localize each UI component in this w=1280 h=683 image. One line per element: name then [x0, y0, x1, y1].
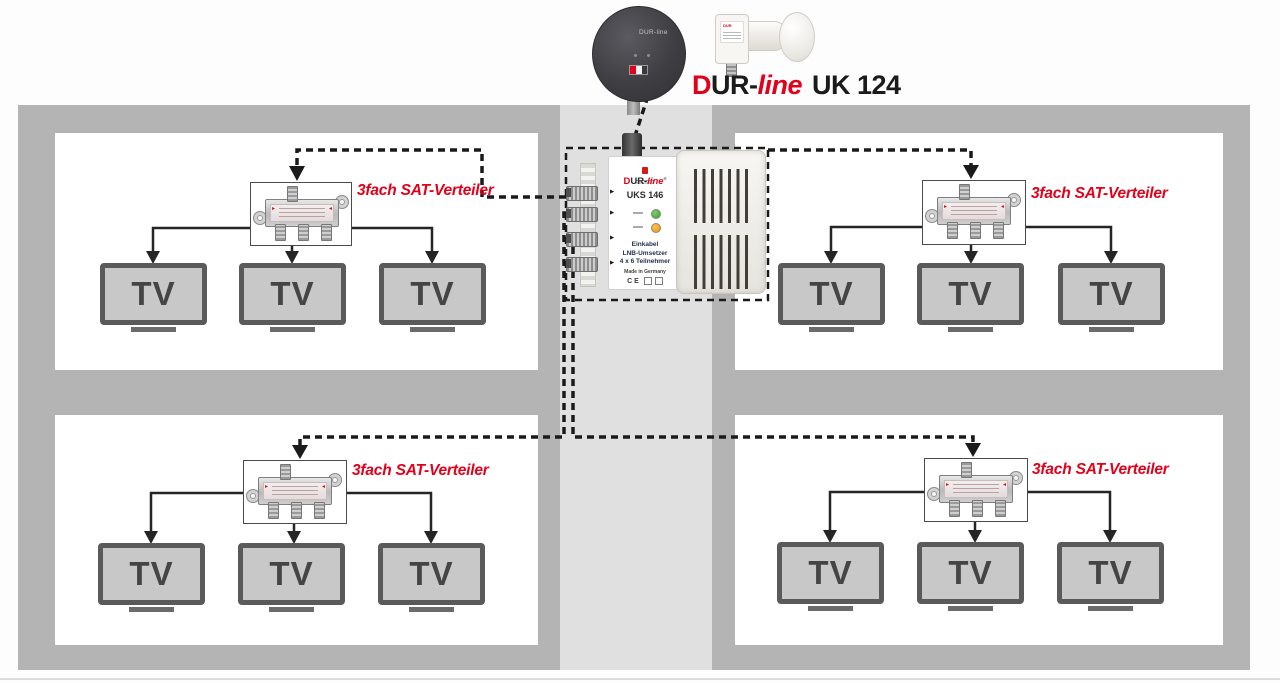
- unit-output-connector-1: [566, 186, 598, 201]
- connector-arrow-icon: ▶: [610, 261, 614, 267]
- connector-arrow-icon: ▶: [610, 236, 614, 242]
- splitter-output: [970, 222, 981, 239]
- unit-output-connector-2: [566, 207, 598, 222]
- distribution-unit-faceplate: DUR-line® UKS 146 Einkabel LNB-Umsetzer …: [608, 156, 682, 290]
- tv-label: TV: [948, 554, 992, 592]
- splitter-box-top-left: ▸◂: [250, 182, 352, 246]
- tv-label: TV: [409, 555, 453, 593]
- tv-label: TV: [131, 275, 175, 313]
- splitter-label: 3fach SAT-Verteiler: [352, 462, 489, 480]
- tv-label: TV: [808, 554, 852, 592]
- tv-label: TV: [269, 555, 313, 593]
- tv-label: TV: [1088, 554, 1132, 592]
- splitter-box-top-right: ▸◂: [922, 180, 1026, 245]
- tv-label: TV: [809, 275, 853, 313]
- splitter-label: 3fach SAT-Verteiler: [1032, 461, 1169, 479]
- dish-rivet: [647, 54, 650, 57]
- tv-stand: [409, 607, 454, 612]
- splitter-body: ▸◂: [937, 197, 1011, 225]
- splitter-output: [275, 224, 286, 241]
- tv-label: TV: [410, 275, 454, 313]
- tv: TV: [917, 263, 1024, 335]
- title-model: UK 124: [812, 70, 901, 100]
- tv-label: TV: [1089, 275, 1133, 313]
- vent-slots-lower: [694, 235, 750, 289]
- title-letter-d: D: [692, 70, 711, 100]
- tv-label: TV: [948, 275, 992, 313]
- tv: TV: [778, 263, 885, 335]
- dish-logo-sticker: [629, 65, 648, 75]
- splitter-input: [280, 464, 291, 480]
- splitter-output: [972, 500, 983, 517]
- tv: TV: [239, 263, 346, 335]
- unit-output-connector-3: [566, 232, 598, 247]
- unit-brand: DUR-line®: [609, 176, 681, 187]
- unit-vented-cover: [676, 150, 766, 294]
- dish-rivet: [634, 54, 637, 57]
- diagram-canvas: DUR-line DUR DUR-lineUK 124 DUR-line® UK…: [0, 0, 1280, 683]
- page-bottom-edge: [0, 678, 1280, 680]
- title-line: line: [758, 70, 803, 100]
- splitter-label: 3fach SAT-Verteiler: [1031, 185, 1168, 203]
- splitter-input: [961, 462, 972, 478]
- unit-description: Einkabel LNB-Umsetzer 4 x 6 Teilnehmer: [609, 241, 681, 267]
- unit-output-connector-4: [566, 257, 598, 272]
- unit-warning-mark: [609, 161, 681, 173]
- splitter-body: ▸◂: [939, 475, 1013, 503]
- splitter-box-bottom-left: ▸◂: [243, 460, 347, 524]
- tv-label: TV: [129, 555, 173, 593]
- tv-stand: [809, 327, 854, 332]
- tv-stand: [270, 327, 315, 332]
- tv: TV: [98, 543, 205, 615]
- splitter-label-face: ▸◂: [942, 202, 1006, 220]
- tv-stand: [410, 327, 455, 332]
- sat-splitter-device: ▸◂: [265, 199, 337, 229]
- product-title: DUR-lineUK 124: [692, 70, 901, 101]
- connector-arrow-icon: ▶: [610, 211, 614, 217]
- splitter-output: [995, 500, 1006, 517]
- splitter-label-face: ▸◂: [270, 204, 334, 222]
- splitter-input: [959, 184, 970, 200]
- splitter-label-face: ▸◂: [263, 482, 327, 500]
- splitter-output: [314, 502, 325, 519]
- tv: TV: [100, 263, 207, 335]
- unit-certification-row: CE: [609, 277, 681, 285]
- tv-stand: [948, 327, 993, 332]
- tv-stand: [1088, 606, 1133, 611]
- splitter-input: [287, 186, 298, 202]
- lnb-body: DUR: [715, 14, 749, 64]
- tv-stand: [131, 327, 176, 332]
- title-ur: UR-: [711, 70, 758, 100]
- splitter-body: ▸◂: [265, 199, 339, 227]
- unit-model: UKS 146: [609, 190, 681, 200]
- tv: TV: [378, 543, 485, 615]
- tv-stand: [269, 607, 314, 612]
- splitter-label-face: ▸◂: [944, 480, 1008, 498]
- splitter-label: 3fach SAT-Verteiler: [357, 182, 494, 200]
- tv: TV: [917, 542, 1024, 614]
- splitter-output: [947, 222, 958, 239]
- tv-stand: [1089, 327, 1134, 332]
- led-green: [633, 209, 673, 218]
- sat-splitter-device: ▸◂: [258, 477, 330, 507]
- tv: TV: [1057, 542, 1164, 614]
- tv-stand: [948, 606, 993, 611]
- tv-stand: [808, 606, 853, 611]
- splitter-output: [268, 502, 279, 519]
- splitter-output: [949, 500, 960, 517]
- unit-made-in: Made in Germany: [609, 269, 681, 275]
- splitter-output: [298, 224, 309, 241]
- tv-label: TV: [270, 275, 314, 313]
- lnb-label: DUR: [720, 21, 744, 43]
- tv: TV: [1058, 263, 1165, 335]
- lnb-feed-horn: [779, 12, 815, 62]
- sat-splitter-device: ▸◂: [939, 475, 1011, 505]
- splitter-output: [291, 502, 302, 519]
- splitter-output: [993, 222, 1004, 239]
- splitter-output: [321, 224, 332, 241]
- led-orange: [633, 223, 673, 232]
- splitter-box-bottom-right: ▸◂: [924, 458, 1028, 522]
- splitter-body: ▸◂: [258, 477, 332, 505]
- sat-splitter-device: ▸◂: [937, 197, 1009, 227]
- tv-stand: [129, 607, 174, 612]
- connector-arrow-icon: ▶: [610, 190, 614, 196]
- tv: TV: [777, 542, 884, 614]
- tv: TV: [238, 543, 345, 615]
- vent-slots-upper: [694, 169, 750, 223]
- dish-brand-label: DUR-line: [639, 29, 668, 36]
- tv: TV: [379, 263, 486, 335]
- satellite-dish: DUR-line: [592, 6, 686, 102]
